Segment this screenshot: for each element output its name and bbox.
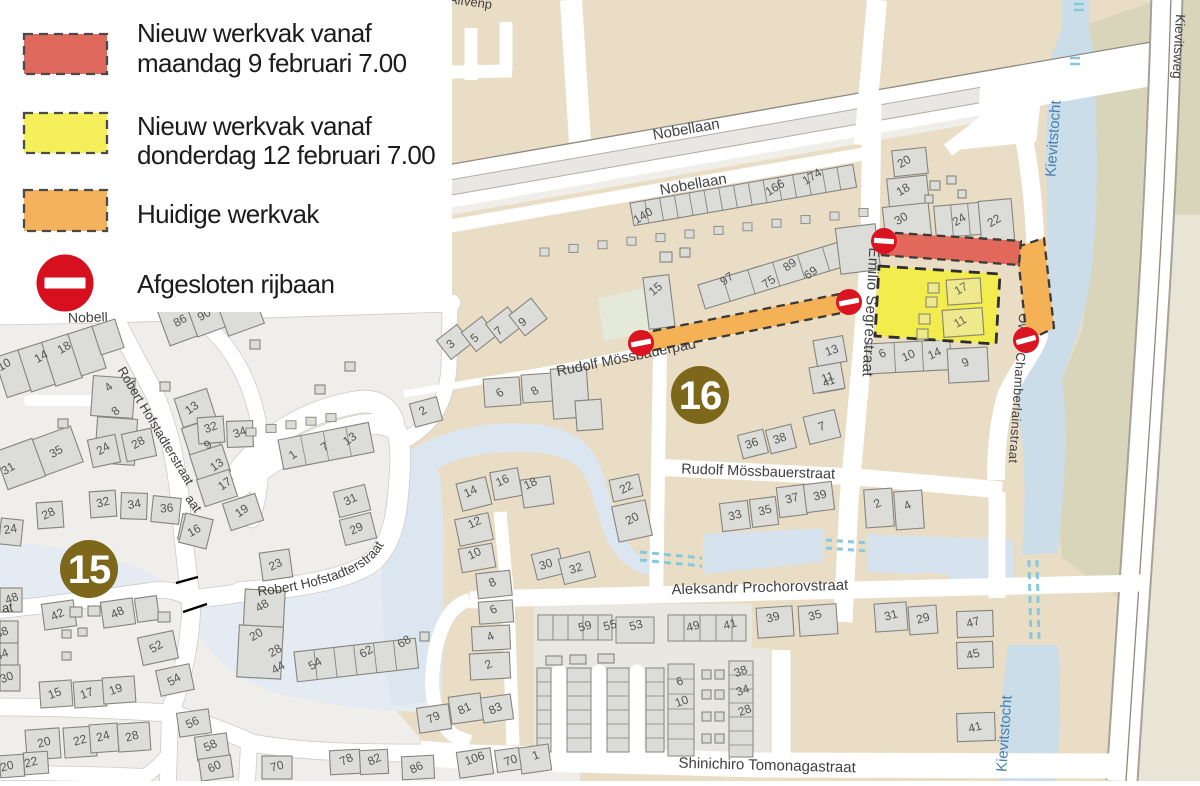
svg-text:15: 15	[68, 548, 111, 592]
svg-text:16: 16	[679, 374, 722, 418]
svg-text:maandag 9 februari 7.00: maandag 9 februari 7.00	[137, 48, 407, 78]
svg-text:donderdag 12 februari 7.00: donderdag 12 februari 7.00	[137, 140, 435, 170]
svg-text:Huidige werkvak: Huidige werkvak	[137, 199, 320, 229]
svg-text:Nieuw werkvak vanaf: Nieuw werkvak vanaf	[137, 111, 373, 141]
svg-text:Afgesloten rijbaan: Afgesloten rijbaan	[137, 269, 334, 299]
svg-text:36: 36	[159, 500, 174, 515]
svg-text:Nieuw werkvak vanaf: Nieuw werkvak vanaf	[137, 18, 373, 48]
svg-text:34: 34	[127, 496, 143, 512]
svg-text:24: 24	[3, 521, 19, 537]
